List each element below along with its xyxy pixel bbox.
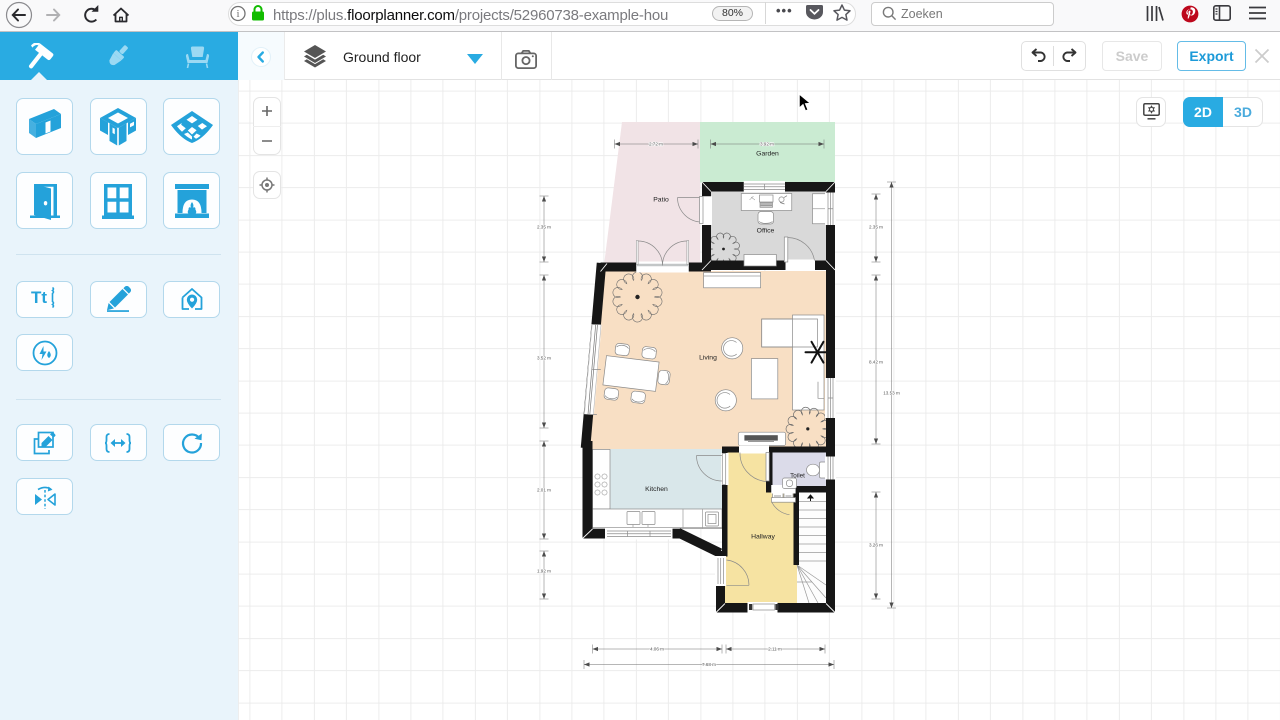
svg-text:3.52 m: 3.52 m [537,356,551,361]
svg-text:Toilet: Toilet [790,473,805,480]
svg-text:Garden: Garden [756,151,779,158]
svg-text:2.11 m: 2.11 m [768,647,782,652]
svg-text:2.35 m: 2.35 m [537,225,551,230]
svg-text:Living: Living [699,355,717,362]
svg-text:4.06 m: 4.06 m [650,647,664,652]
svg-text:Kitchen: Kitchen [645,486,668,493]
svg-text:2.01 m: 2.01 m [537,488,551,493]
svg-text:Tt: Tt [31,288,47,307]
svg-text:7.68 m: 7.68 m [702,662,716,667]
svg-text:2.35 m: 2.35 m [869,225,883,230]
svg-text:13.53 m: 13.53 m [883,391,900,396]
svg-text:Office: Office [757,228,775,235]
svg-text:i: i [236,8,239,20]
svg-text:3.26 m: 3.26 m [869,543,883,548]
svg-text:2.72 m: 2.72 m [649,142,663,147]
svg-text:3.92 m: 3.92 m [760,142,774,147]
svg-text:1.92 m: 1.92 m [537,569,551,574]
svg-text:Hallway: Hallway [751,534,775,541]
svg-text:Patio: Patio [653,197,669,204]
svg-text:8.42 m: 8.42 m [869,360,883,365]
